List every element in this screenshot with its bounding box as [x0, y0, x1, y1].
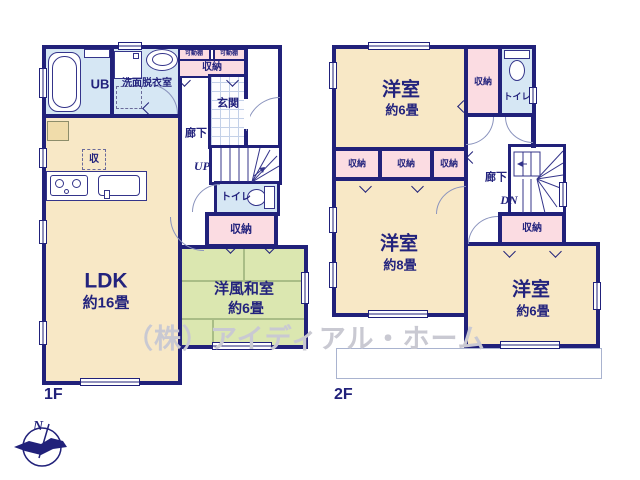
- label-toilet-1f: トイレ: [221, 193, 251, 203]
- label-bedroom-left-name: 洋室: [380, 235, 418, 254]
- door-arc-bedroom-top: [466, 117, 494, 145]
- window: [593, 282, 601, 310]
- window: [500, 341, 560, 349]
- label-kitchen-storage: 収: [89, 155, 99, 165]
- label-bedroom-left-size: 約8畳: [383, 259, 416, 272]
- window: [39, 148, 47, 168]
- label-entrance: 玄関: [217, 99, 239, 110]
- label-ldk-name: LDK: [84, 271, 127, 292]
- label-ldk-size: 約16畳: [83, 296, 130, 311]
- label-hallway-1f: 廊下: [185, 129, 207, 140]
- closet-door-mark: [466, 151, 479, 164]
- window: [118, 42, 142, 50]
- label-closet-mid: 収納: [522, 224, 542, 234]
- bath-counter: [84, 49, 110, 58]
- kitchen-faucet: [104, 190, 110, 199]
- label-tatami-size: 約6畳: [228, 301, 264, 315]
- washing-machine-detail: [133, 53, 139, 59]
- window: [368, 42, 430, 50]
- door-arc-bedroom-right: [468, 216, 498, 244]
- label-storage-hall: 収納: [202, 63, 222, 73]
- label-shelf-left: 可動棚: [185, 51, 203, 57]
- stairs-down-treads: [511, 147, 563, 213]
- window: [301, 272, 309, 304]
- toilet-tank-2f: [504, 50, 530, 59]
- label-stairs-down: DN: [500, 194, 517, 206]
- label-stairs-up: UP: [194, 160, 210, 172]
- floor-label-1f: 1F: [44, 386, 63, 404]
- label-toilet-2f: トイレ: [503, 93, 530, 102]
- ldk-corner-counter: [47, 121, 69, 141]
- label-unit-bath: UB: [91, 78, 110, 91]
- label-hallway-2f: 廊下: [485, 173, 507, 184]
- stairs-up-treads: [212, 148, 279, 182]
- label-closet-row-1: 収納: [348, 160, 366, 169]
- door-arc-toilet-2f: [505, 117, 533, 143]
- floor-label-2f: 2F: [334, 386, 353, 404]
- label-bedroom-right-name: 洋室: [512, 281, 550, 300]
- toilet-tank-1f: [264, 186, 275, 209]
- label-bedroom-right-size: 約6畳: [516, 305, 549, 318]
- door-arc-toilet-1f: [192, 184, 220, 212]
- window: [39, 68, 47, 98]
- bathtub-inner: [52, 56, 77, 108]
- label-closet-row-3: 収納: [440, 160, 458, 169]
- toilet-bowl-2f: [509, 60, 525, 81]
- label-tatami-name: 洋風和室: [214, 282, 274, 297]
- tatami-line: [243, 249, 245, 281]
- label-washroom: 洗面脱衣室: [122, 79, 172, 89]
- window: [39, 321, 47, 345]
- window: [80, 378, 140, 386]
- stove-burner: [55, 179, 64, 188]
- washroom-dashed-box: [116, 86, 142, 109]
- label-shelf-right: 可動棚: [220, 51, 238, 57]
- stove-burner: [64, 189, 69, 194]
- watermark: （株）アイディアル・ホーム: [126, 317, 486, 356]
- label-closet-row-2: 収納: [397, 160, 415, 169]
- window: [39, 220, 47, 244]
- floor-plan: UB 洗面脱衣室 可動棚 可動棚 収納 玄関 廊下 UP トイレ 収納 収 LD…: [0, 0, 640, 480]
- label-storage-mid: 収納: [230, 225, 252, 236]
- door-opening: [244, 99, 250, 129]
- compass-icon: N: [12, 416, 70, 474]
- window: [329, 62, 337, 89]
- room-entrance: [208, 74, 248, 149]
- window: [329, 207, 337, 233]
- wall-segment: [178, 45, 248, 50]
- label-bedroom-top-name: 洋室: [382, 81, 420, 100]
- stove-burner: [72, 179, 81, 188]
- window: [559, 182, 567, 207]
- compass-needle: [14, 438, 67, 455]
- vanity-sink-inner: [152, 53, 173, 66]
- label-closet-top: 収納: [474, 78, 492, 87]
- window: [329, 262, 337, 288]
- label-bedroom-top-size: 約6畳: [385, 104, 418, 117]
- north-label: N: [32, 419, 44, 434]
